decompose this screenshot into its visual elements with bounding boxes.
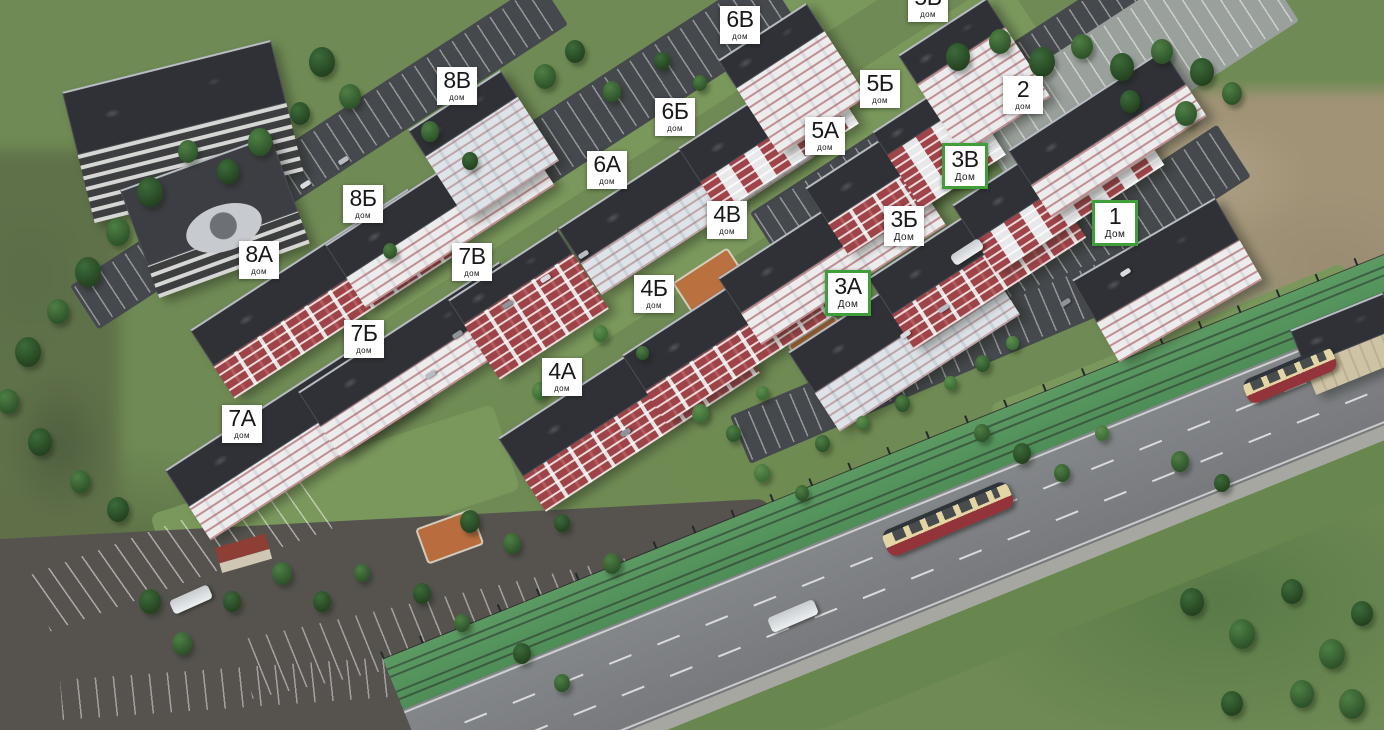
tree [421,121,439,142]
tree [636,346,649,361]
building-number: 8В [437,68,477,93]
tree [172,632,192,655]
tree [178,140,198,163]
tree [1110,53,1134,81]
tree [1221,691,1243,716]
tree [692,404,709,424]
tree [460,510,480,533]
tree [106,218,130,246]
tree [272,562,292,585]
building-number: 8Б [343,186,383,211]
building-label-8a[interactable]: 8Адом [239,241,279,279]
building-sub: дом [634,301,674,310]
building-sub: Дом [828,299,868,310]
building-number: 6А [587,152,627,177]
tree [1029,47,1055,77]
siteplan-render: 5Вдом 6Вдом 8Вдом 5Бдом 2дом 6Бдом 5Адом… [0,0,1384,730]
building-sub: дом [908,10,948,19]
tree [503,533,521,554]
building-sub: дом [720,32,760,41]
building-label-7a[interactable]: 7Адом [222,405,262,443]
tree [944,376,957,391]
building-label-5a[interactable]: 5Адом [805,117,845,155]
building-sub: дом [542,384,582,393]
tree [895,395,910,412]
building-number: 1 [1095,204,1135,229]
building-label-8v[interactable]: 8Вдом [437,67,477,105]
building-label-6b[interactable]: 6Бдом [655,98,695,136]
building-sub: дом [344,346,384,355]
tree [290,102,310,125]
tree [1351,601,1373,626]
building-number: 4В [707,202,747,227]
tree [565,40,585,63]
building-sub: дом [222,431,262,440]
tree [856,416,869,431]
tree [413,583,431,604]
building-label-7b[interactable]: 7Бдом [344,320,384,358]
building-sub: Дом [1095,229,1135,240]
building-label-5b[interactable]: 5Бдом [860,70,900,108]
building-number: 6Б [655,99,695,124]
building-number: 8А [239,242,279,267]
tree [693,75,707,91]
tree [137,177,163,207]
building-sub: дом [805,143,845,152]
building-sub: дом [239,267,279,276]
tree [15,337,41,367]
building-sub: дом [343,211,383,220]
building-number: 7Б [344,321,384,346]
building-number: 3В [945,147,985,172]
tree [75,257,101,287]
building-sub: дом [587,177,627,186]
tree [1171,451,1189,472]
building-number: 5В [908,0,948,10]
tree [383,243,397,259]
building-number: 2 [1003,77,1043,102]
building-sub: дом [860,96,900,105]
building-number: 7В [452,244,492,269]
building-sub: дом [655,124,695,133]
building-label-7v[interactable]: 7Вдом [452,243,492,281]
tree [946,43,970,71]
building-label-3v[interactable]: 3ВДом [942,143,988,189]
tree [1180,588,1204,616]
building-number: 3Б [884,207,924,232]
building-label-5v[interactable]: 5Вдом [908,0,948,22]
tree [309,47,335,77]
building-label-3a[interactable]: 3АДом [825,270,871,316]
building-label-8b[interactable]: 8Бдом [343,185,383,223]
tree [513,643,531,664]
building-sub: дом [437,93,477,102]
building-label-1[interactable]: 1Дом [1092,200,1138,246]
building-number: 7А [222,406,262,431]
building-number: 5А [805,118,845,143]
tree [1281,579,1303,604]
tree [70,470,90,493]
tree [1229,619,1255,649]
tree [1013,443,1031,464]
tree [1290,680,1314,708]
building-sub: дом [1003,102,1043,111]
building-sub: дом [707,227,747,236]
tree [815,435,830,452]
building-number: 6В [720,7,760,32]
tree [603,553,621,574]
tree [975,355,990,372]
building-label-6a[interactable]: 6Адом [587,151,627,189]
building-label-6v[interactable]: 6Вдом [720,6,760,44]
building-number: 3А [828,274,868,299]
building-sub: Дом [945,172,985,183]
building-label-4v[interactable]: 4Вдом [707,201,747,239]
tree [1095,425,1109,441]
tree [1339,689,1365,719]
building-label-4b[interactable]: 4Бдом [634,275,674,313]
tree [1222,82,1242,105]
building-sub: дом [452,269,492,278]
building-label-3b[interactable]: 3БДом [884,206,924,246]
tree [313,591,331,612]
tree [726,425,741,442]
tree [1006,336,1019,351]
tree [107,497,129,522]
building-sub: Дом [884,232,924,243]
building-number: 4А [542,359,582,384]
tree [1120,90,1140,113]
building-label-2[interactable]: 2дом [1003,76,1043,114]
tree [1319,639,1345,669]
building-number: 4Б [634,276,674,301]
tree [1190,58,1214,86]
tree [795,485,809,501]
tree [593,325,608,342]
tree [223,591,241,612]
tree [603,81,621,102]
tree [754,464,770,482]
tree [28,428,52,456]
building-label-4a[interactable]: 4Адом [542,358,582,396]
tree [248,128,272,156]
tree [756,386,769,401]
building-number: 5Б [860,71,900,96]
